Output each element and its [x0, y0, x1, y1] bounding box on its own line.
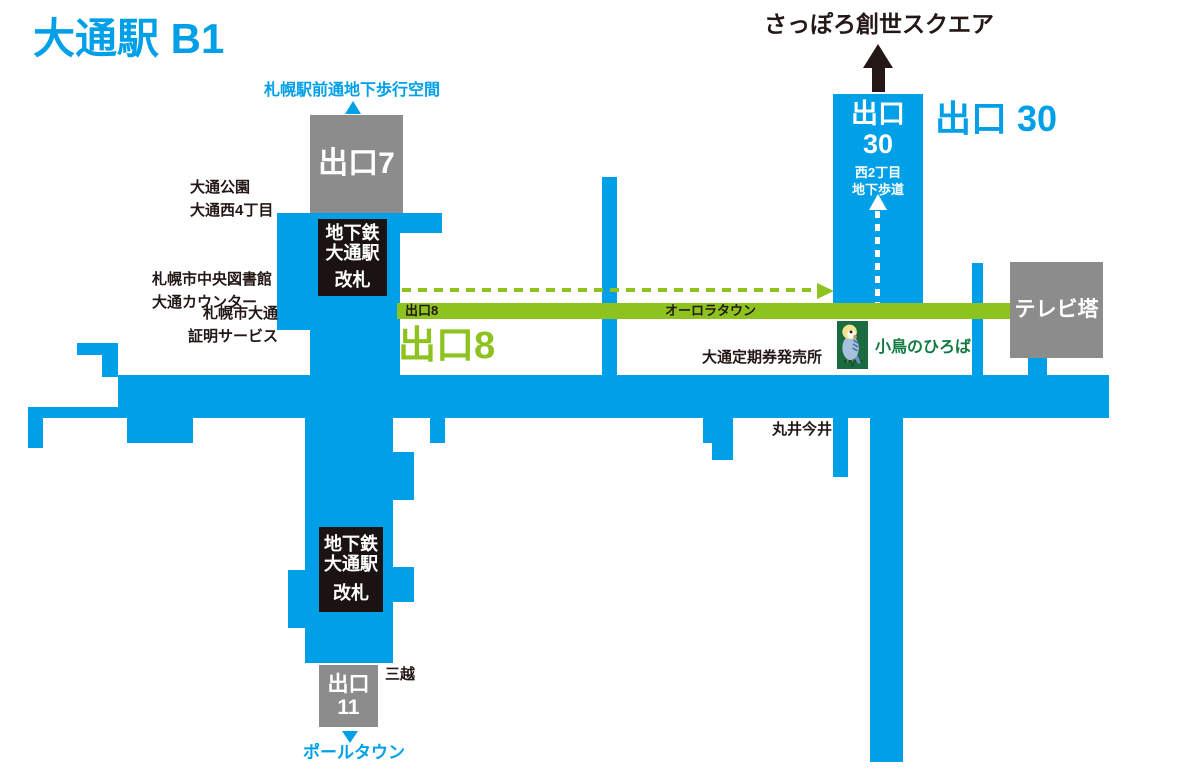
- corridor-stub-d: [430, 418, 445, 443]
- corridor-north-vertical-lower: [310, 330, 400, 376]
- poletown-down-arrow-icon: [342, 731, 358, 743]
- corridor-southeast-long: [870, 418, 903, 762]
- exit11-label-line2: 11: [337, 696, 359, 719]
- bird-icon: [837, 321, 868, 369]
- library-line1: 札幌市中央図書館: [152, 269, 272, 292]
- gate-south-line2: 大通駅: [324, 555, 378, 575]
- dashed-route-arrow-icon: [817, 283, 834, 299]
- corridor-south-column-bump-right-2: [393, 567, 414, 602]
- sosei-arrow-shaft: [872, 66, 885, 92]
- kotori-hiroba-label: 小鳥のひろば: [875, 338, 971, 357]
- gate-south-line1: 地下鉄: [324, 535, 378, 555]
- exit8-big-label: 出口8: [398, 324, 495, 370]
- corridor-west-nub-b: [102, 355, 118, 377]
- teiki-office-label: 大通定期券発売所: [702, 349, 822, 367]
- sosei-square-label: さっぽろ創世スクエア: [764, 11, 994, 39]
- exit30-up-arrow-icon: [869, 194, 887, 210]
- sosei-up-arrow-icon: [863, 44, 893, 68]
- poletown-label: ポールタウン: [303, 743, 405, 763]
- exit30-box-line2: 30: [863, 130, 893, 160]
- exit7-box: 出口7: [310, 115, 403, 213]
- tv-tower-label: テレビ塔: [1015, 297, 1099, 322]
- corridor-west-nub-a: [77, 343, 118, 355]
- corridor-mid-vertical-strip: [602, 177, 617, 375]
- kotori-hiroba-box: [837, 321, 868, 369]
- corridor-tvtower-stub: [1028, 358, 1047, 375]
- odori-park-line2: 大通西4丁目: [190, 199, 273, 222]
- shomei-line1: 札幌市大通: [150, 303, 278, 326]
- corridor-east-strip: [972, 263, 983, 375]
- corridor-west-leg: [28, 418, 43, 448]
- gate-north-line1: 地下鉄: [326, 224, 380, 244]
- nishi2-line1: 西2丁目: [855, 165, 901, 182]
- station-map: 出口7 テレビ塔 出口 11 地下鉄 大通駅 改札 地下鉄 大通駅 改札 出口 …: [0, 0, 1200, 780]
- gate-north-line2: 大通駅: [326, 244, 380, 264]
- corridor-stub-marui-a: [703, 418, 733, 443]
- aurora-town-label: オーロラタウン: [665, 303, 756, 319]
- dashed-route-line: [402, 288, 816, 292]
- shomei-service-label: 札幌市大通 証明サービス: [150, 303, 278, 348]
- page-title: 大通駅 B1: [33, 14, 224, 64]
- corridor-south-column-bump-right-1: [393, 452, 414, 500]
- shomei-line2: 証明サービス: [150, 326, 278, 349]
- corridor-main-horizontal: [118, 375, 1109, 418]
- corridor-west-extension: [28, 407, 118, 418]
- exit30-box-line1: 出口: [851, 100, 905, 130]
- exit30-box-labels: 出口 30 西2丁目 地下歩道: [833, 100, 923, 199]
- corridor-stub-marui-b: [712, 443, 733, 460]
- corridor-stub-southwest: [127, 418, 193, 443]
- exit30-dashed-line: [875, 211, 880, 303]
- exit7-label: 出口7: [318, 146, 395, 182]
- odori-park-label: 大通公園 大通西4丁目: [190, 176, 273, 223]
- gate-north-line3: 改札: [335, 271, 371, 291]
- mitsukoshi-label: 三越: [385, 666, 415, 684]
- corridor-stub-south-narrow: [833, 418, 848, 477]
- gate-south-line3: 改札: [333, 584, 369, 604]
- exit11-label-line1: 出口: [328, 673, 370, 696]
- odori-park-line1: 大通公園: [190, 176, 273, 199]
- exit11-box: 出口 11: [319, 665, 378, 727]
- exit8-tab-label: 出口8: [405, 303, 438, 319]
- subway-gate-south-box: 地下鉄 大通駅 改札: [319, 527, 383, 612]
- exit30-big-label: 出口 30: [935, 97, 1057, 140]
- subway-gate-north-box: 地下鉄 大通駅 改札: [318, 219, 387, 296]
- marui-imai-label: 丸井今井: [772, 421, 832, 439]
- corridor-south-column-bump-left: [288, 570, 305, 628]
- chikaho-up-arrow-icon: [345, 101, 361, 114]
- tv-tower-box: テレビ塔: [1010, 262, 1103, 358]
- chikaho-label: 札幌駅前通地下歩行空間: [264, 81, 440, 100]
